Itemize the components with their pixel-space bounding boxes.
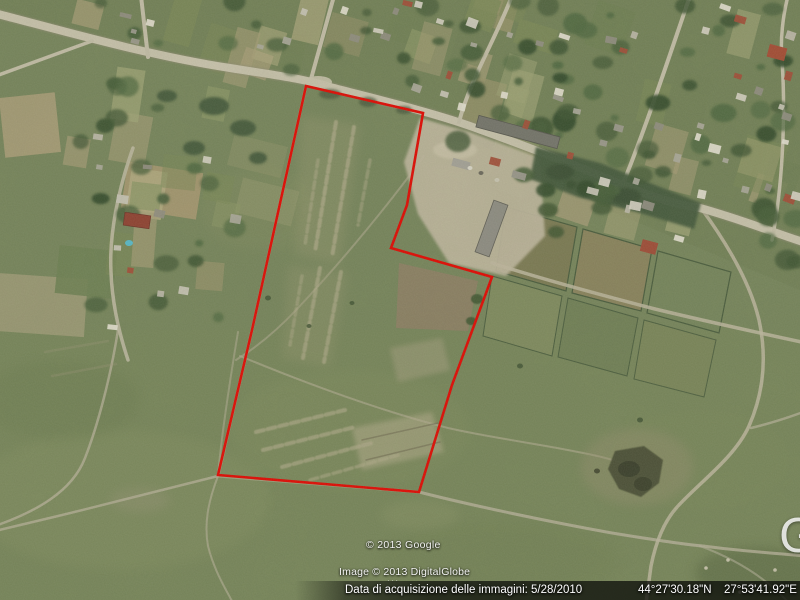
- map-svg[interactable]: [0, 0, 800, 600]
- film-grain: [0, 0, 800, 600]
- digitalglobe-copyright: Image © 2013 DigitalGlobe: [339, 566, 470, 578]
- imagery-date-label: Data di acquisizione delle immagini: 5/2…: [345, 584, 582, 596]
- longitude-value: 27°53'41.92"E: [724, 584, 797, 596]
- google-copyright: © 2013 Google: [366, 539, 441, 551]
- satellite-map-viewport[interactable]: © 2013 Google Image © 2013 DigitalGlobe …: [0, 0, 800, 600]
- google-logo-partial: G: [779, 513, 800, 559]
- status-bar: Data di acquisizione delle immagini: 5/2…: [0, 581, 800, 600]
- latitude-value: 44°27'30.18"N: [638, 584, 712, 596]
